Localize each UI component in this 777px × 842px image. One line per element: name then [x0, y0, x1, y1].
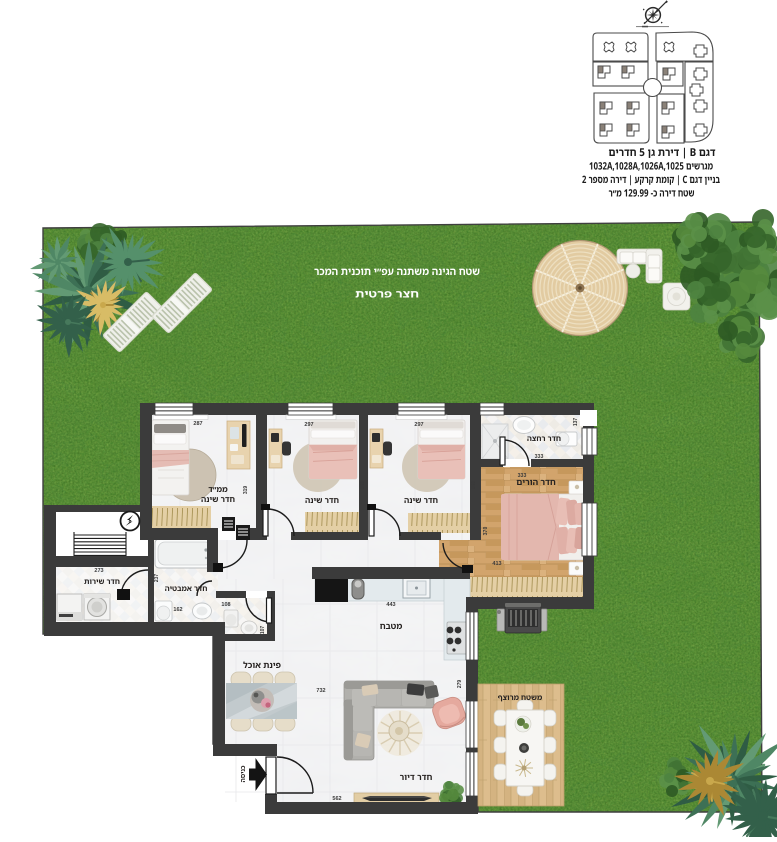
svg-text:370: 370 — [483, 527, 489, 536]
svg-text:348: 348 — [471, 481, 477, 490]
svg-text:79: 79 — [217, 655, 223, 661]
svg-text:562: 562 — [332, 796, 341, 802]
svg-text:287: 287 — [193, 421, 202, 427]
svg-text:297: 297 — [304, 422, 313, 428]
svg-text:319: 319 — [243, 486, 249, 495]
svg-text:333: 333 — [535, 454, 544, 460]
svg-text:279: 279 — [457, 680, 463, 689]
svg-text:107: 107 — [260, 626, 266, 635]
svg-text:297: 297 — [414, 422, 423, 428]
svg-text:443: 443 — [386, 602, 395, 608]
svg-text:108: 108 — [221, 602, 230, 608]
svg-text:273: 273 — [94, 568, 103, 574]
svg-text:413: 413 — [492, 561, 501, 567]
svg-text:162: 162 — [173, 607, 182, 613]
svg-text:137: 137 — [573, 418, 579, 427]
svg-text:237: 237 — [154, 574, 160, 583]
svg-text:732: 732 — [316, 688, 325, 694]
svg-text:333: 333 — [518, 473, 527, 479]
svg-text:348: 348 — [360, 481, 366, 490]
